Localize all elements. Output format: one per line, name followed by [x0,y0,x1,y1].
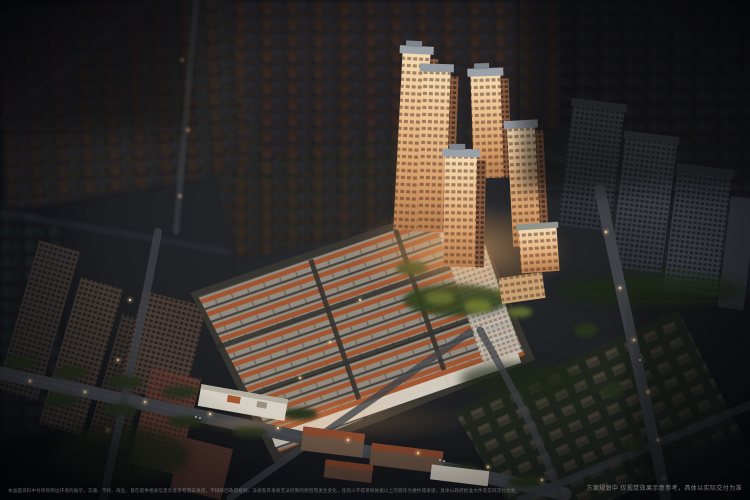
aerial-city-scene [0,0,750,500]
rendering-canvas: 本画面资料中对项目周边环境的展示，交通、学校、商业，意在提供相关信息示意参考而非… [0,0,750,500]
vignette [0,0,750,500]
